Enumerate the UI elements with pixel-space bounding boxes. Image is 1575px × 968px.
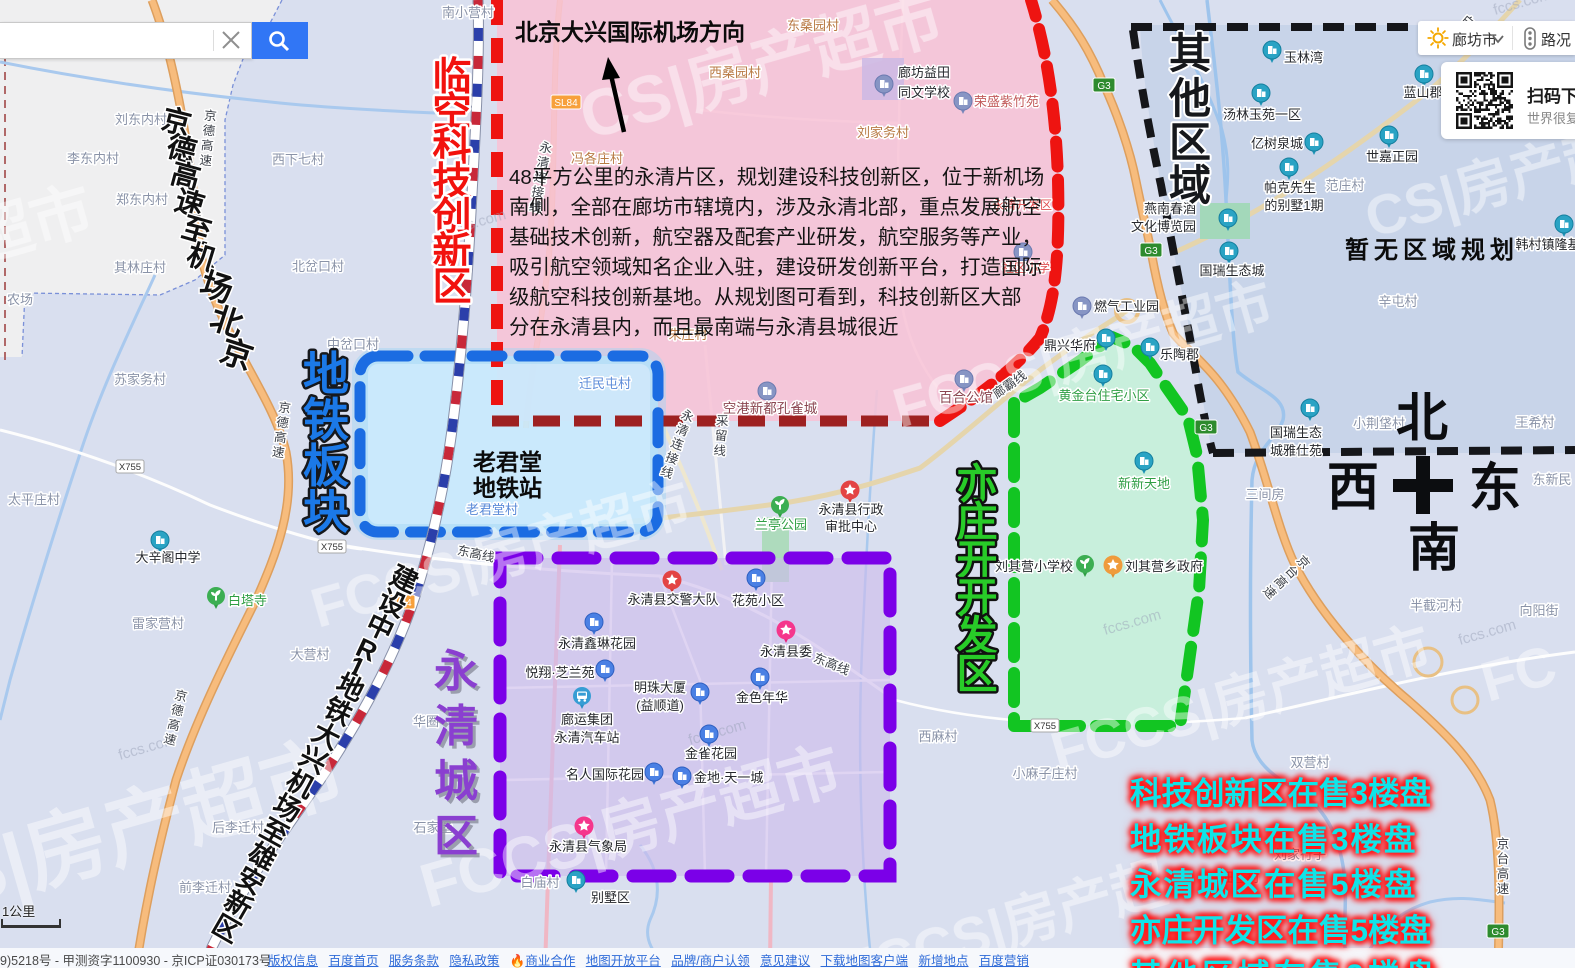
svg-text:吸引航空领域知名企业入驻，建设研发创新平台，打造国际: 吸引航空领域知名企业入驻，建设研发创新平台，打造国际 — [509, 256, 1042, 279]
svg-text:清: 清 — [434, 702, 478, 751]
svg-text:板: 板 — [303, 440, 349, 492]
svg-text:域: 域 — [1169, 162, 1211, 209]
svg-text:南侧，全部在廊坊市辖境内，涉及永清北部，重点发展航空: 南侧，全部在廊坊市辖境内，涉及永清北部，重点发展航空 — [509, 196, 1042, 219]
svg-text:他: 他 — [1168, 75, 1211, 122]
svg-text:地铁站: 地铁站 — [473, 475, 542, 501]
svg-text:地: 地 — [303, 348, 349, 400]
svg-text:块: 块 — [303, 486, 349, 538]
svg-text:北: 北 — [1396, 390, 1448, 448]
svg-text:其: 其 — [1169, 30, 1211, 77]
svg-text:48平方公里的永清片区，规划建设科技创新区，位于新机场: 48平方公里的永清片区，规划建设科技创新区，位于新机场 — [509, 166, 1044, 189]
svg-text:城: 城 — [434, 757, 478, 806]
svg-text:西: 西 — [1327, 459, 1379, 517]
svg-text:级航空科技创新基地。从规划图可看到，科技创新区大部: 级航空科技创新基地。从规划图可看到，科技创新区大部 — [509, 286, 1022, 309]
svg-text:永: 永 — [434, 647, 478, 696]
svg-text:铁: 铁 — [303, 394, 349, 446]
svg-text:老君堂: 老君堂 — [472, 449, 542, 475]
svg-text:暂无区域规划: 暂无区域规划 — [1345, 236, 1519, 264]
svg-text:基础技术创新，航空器及配套产业研发，航空服务等产业，: 基础技术创新，航空器及配套产业研发，航空服务等产业， — [509, 226, 1042, 249]
svg-text:区: 区 — [1169, 119, 1211, 166]
svg-text:东: 东 — [1469, 460, 1521, 518]
svg-text:区: 区 — [432, 266, 471, 309]
svg-text:分在永清县内，而且最南端与永清县城很近: 分在永清县内，而且最南端与永清县城很近 — [509, 316, 899, 339]
svg-text:南: 南 — [1408, 520, 1460, 578]
svg-text:北京大兴国际机场方向: 北京大兴国际机场方向 — [515, 19, 745, 45]
svg-text:区: 区 — [434, 812, 478, 861]
svg-text:京: 京 — [216, 332, 258, 376]
svg-text:区: 区 — [957, 651, 998, 697]
